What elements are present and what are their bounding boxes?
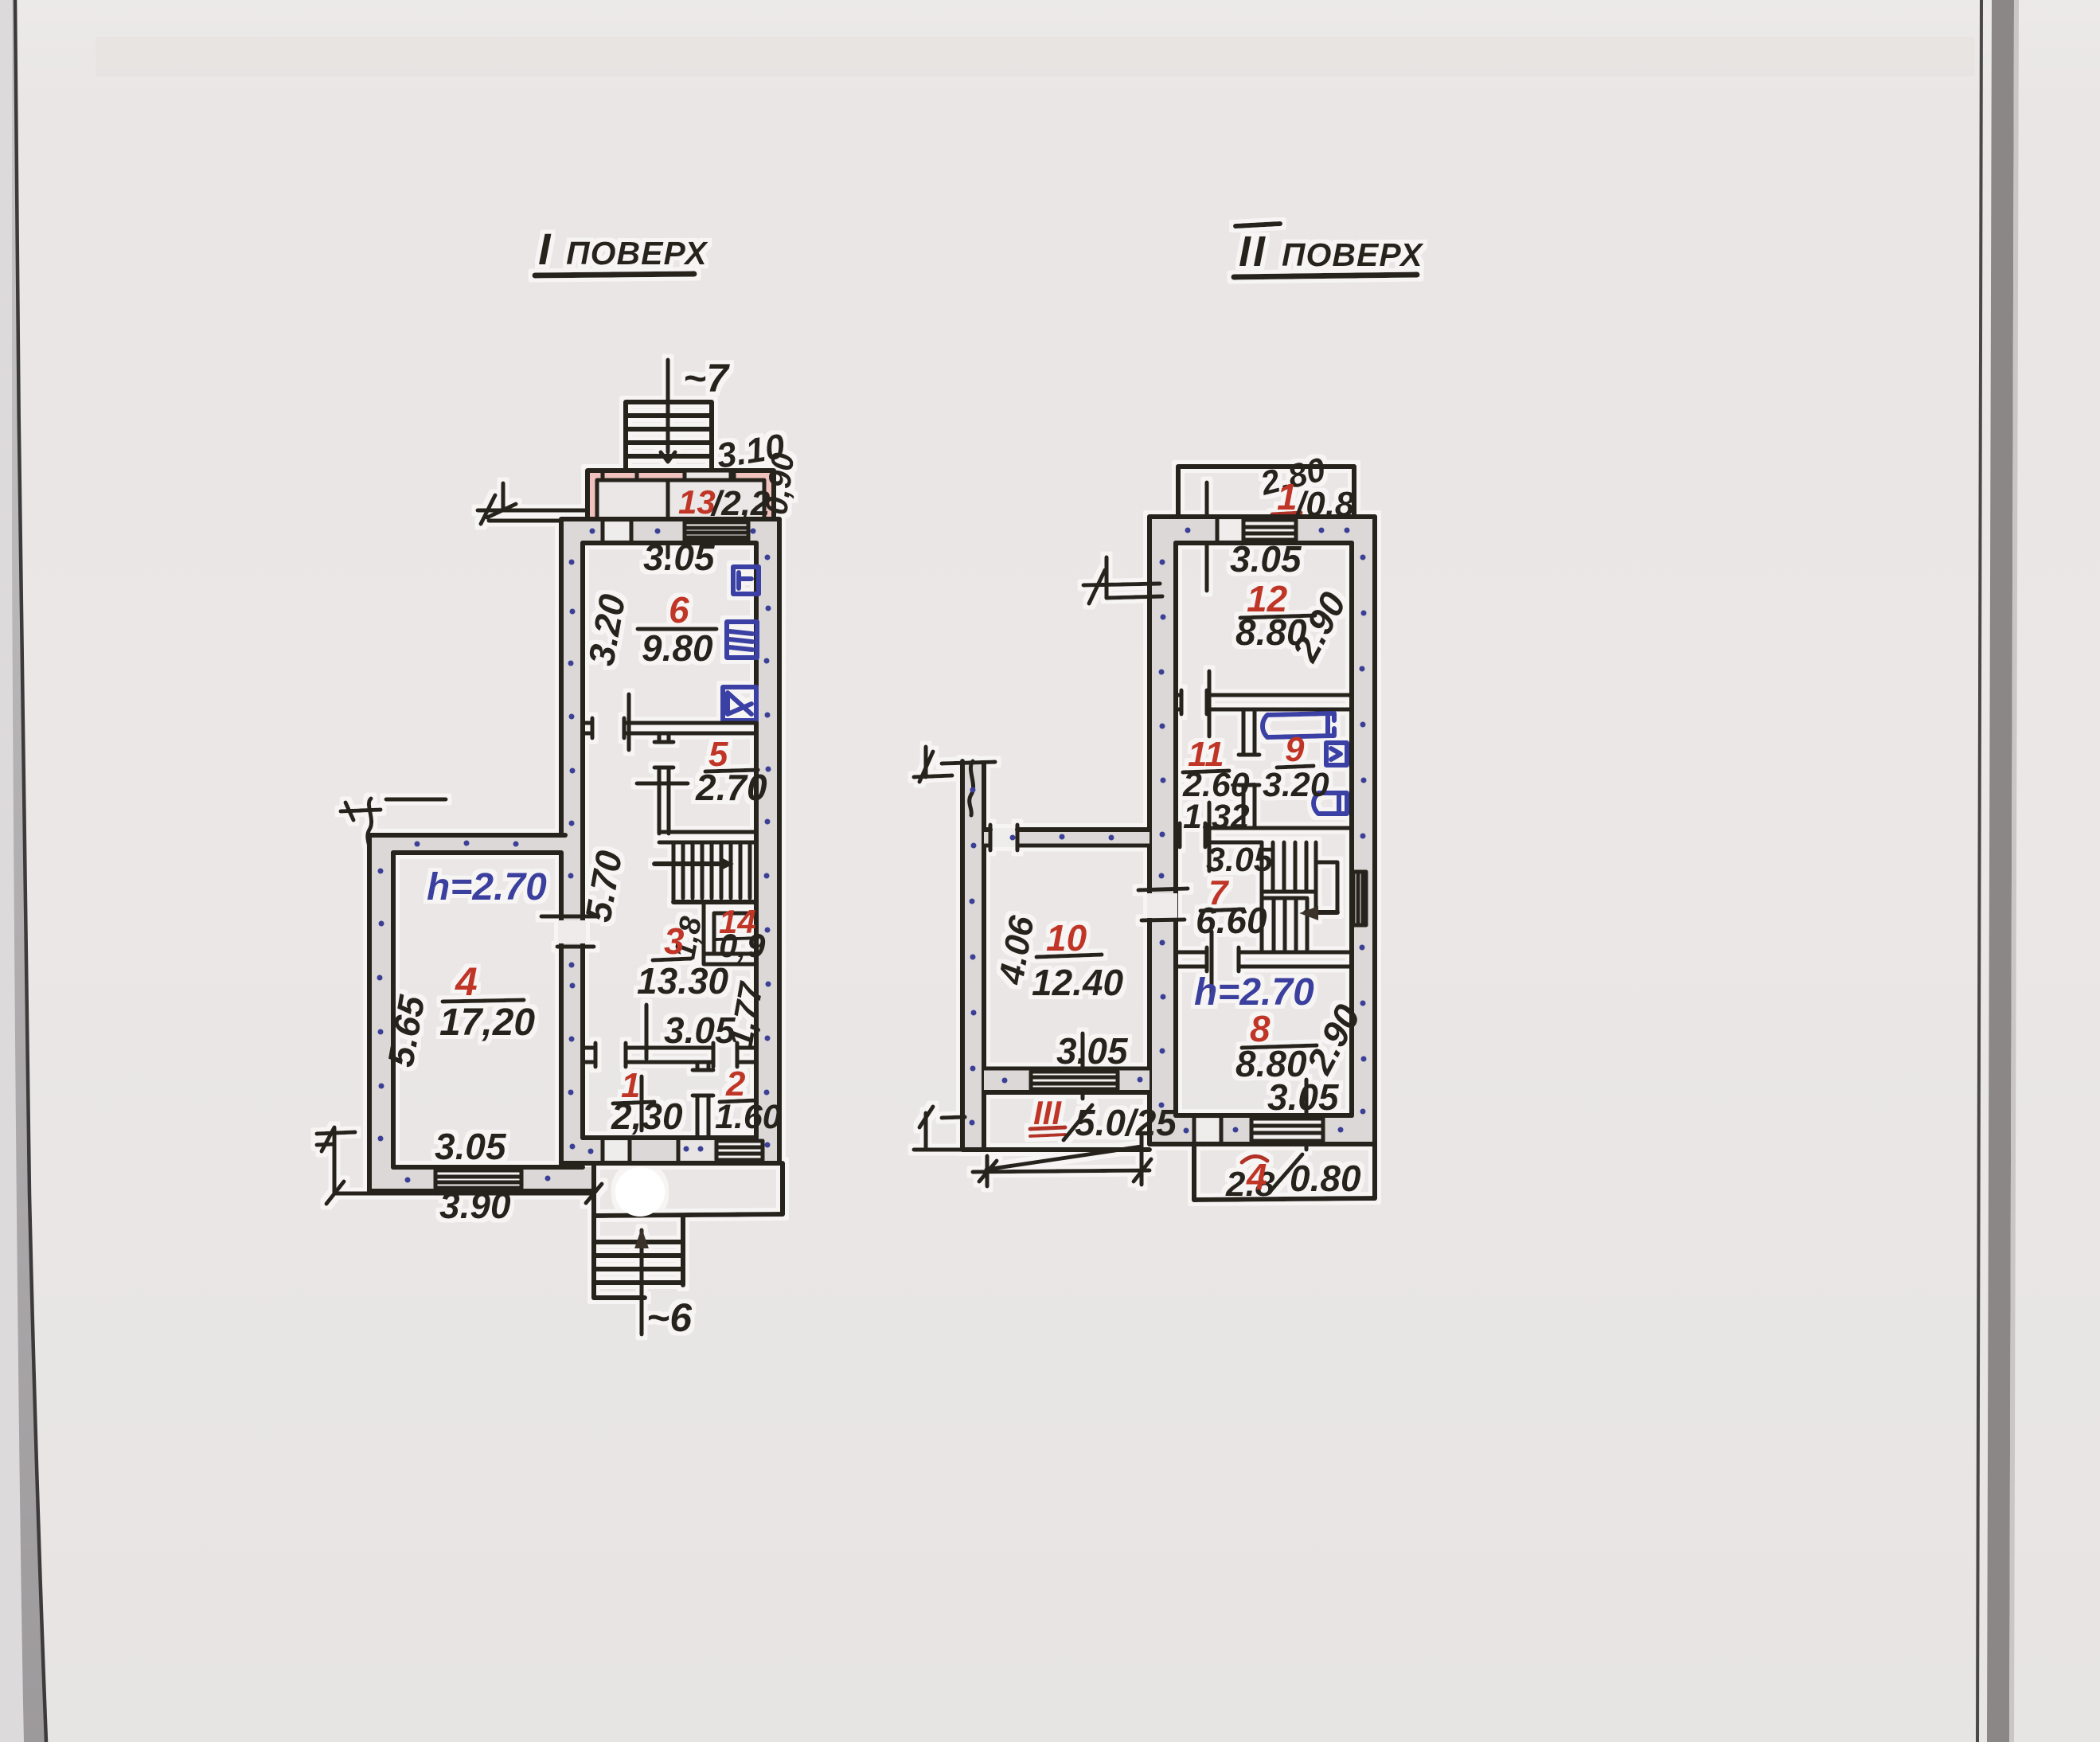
svg-text:0,9: 0,9 (719, 927, 766, 964)
svg-text:13.30: 13.30 (637, 960, 729, 1002)
svg-text:0.80: 0.80 (1290, 1158, 1361, 1199)
svg-text:3.05: 3.05 (1267, 1076, 1340, 1118)
svg-text:12.40: 12.40 (1032, 962, 1124, 1003)
svg-text:~7: ~7 (683, 356, 730, 400)
svg-text:h=2.70: h=2.70 (427, 866, 547, 908)
svg-text:3.05: 3.05 (1230, 538, 1302, 580)
svg-text:3.05: 3.05 (643, 537, 716, 578)
svg-text:6.60: 6.60 (1196, 900, 1267, 941)
svg-text:10: 10 (1046, 917, 1087, 959)
svg-text:1.60: 1.60 (715, 1098, 782, 1136)
svg-text:6: 6 (669, 589, 689, 631)
svg-text:5.0/25: 5.0/25 (1075, 1102, 1177, 1143)
svg-text:4: 4 (1246, 1156, 1267, 1197)
svg-text:9.80: 9.80 (642, 627, 713, 669)
svg-text:9: 9 (1285, 730, 1305, 769)
svg-text:3.05: 3.05 (435, 1126, 507, 1167)
svg-text:3.20: 3.20 (1263, 766, 1329, 804)
svg-text:2,30: 2,30 (611, 1096, 683, 1137)
svg-text:4: 4 (455, 959, 478, 1004)
svg-text:3.05: 3.05 (1056, 1030, 1129, 1072)
svg-text:3: 3 (664, 920, 685, 962)
svg-text:2.70: 2.70 (695, 767, 767, 808)
svg-text:~6: ~6 (646, 1295, 693, 1340)
svg-text:17,20: 17,20 (439, 1002, 535, 1044)
svg-text:3.90: 3.90 (439, 1185, 511, 1226)
svg-text:1.32: 1.32 (1183, 798, 1250, 836)
svg-text:13: 13 (678, 483, 716, 521)
